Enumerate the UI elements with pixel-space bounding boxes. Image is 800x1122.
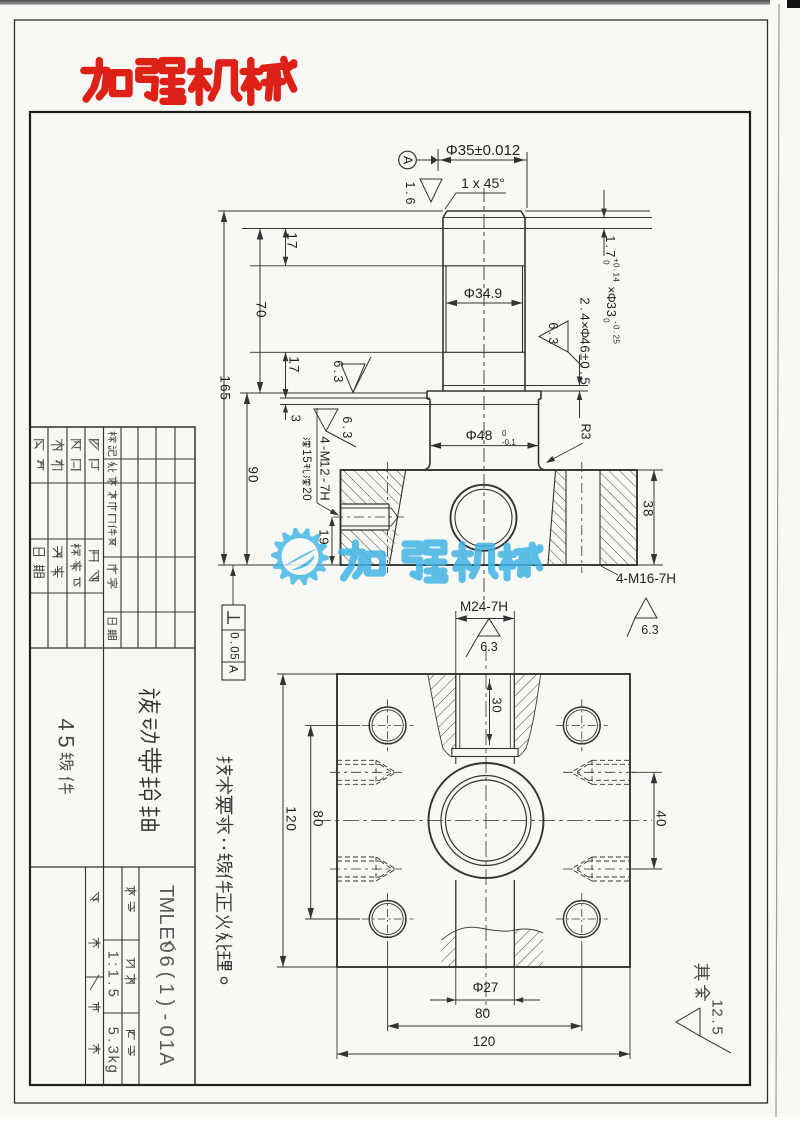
svg-text:2: 2 [578, 297, 593, 304]
svg-text:.: . [340, 425, 354, 428]
svg-text:5: 5 [578, 377, 593, 384]
svg-text:1: 1 [709, 999, 726, 1007]
svg-text:3: 3 [641, 500, 656, 508]
svg-text:1 x 45°: 1 x 45° [461, 175, 505, 191]
svg-text:A: A [155, 1052, 177, 1066]
svg-text:2: 2 [709, 1008, 726, 1016]
svg-text:A: A [227, 665, 241, 673]
svg-text:R: R [579, 423, 593, 432]
svg-text:3: 3 [604, 310, 618, 317]
svg-text:6: 6 [403, 198, 417, 205]
svg-text:0: 0 [155, 1025, 177, 1036]
svg-text:0: 0 [602, 318, 611, 323]
svg-text:T: T [155, 885, 177, 897]
svg-text:0: 0 [602, 260, 611, 265]
svg-text:1: 1 [603, 235, 617, 242]
svg-text:4: 4 [612, 277, 621, 282]
svg-text:6.3: 6.3 [480, 640, 497, 654]
svg-text:1: 1 [285, 232, 300, 240]
svg-text:.: . [578, 371, 593, 375]
svg-text:5: 5 [228, 653, 240, 659]
svg-text:-: - [612, 321, 621, 324]
svg-text:L: L [155, 913, 177, 924]
svg-text:4: 4 [318, 436, 333, 443]
svg-text:1: 1 [287, 356, 302, 364]
svg-text:4: 4 [54, 718, 79, 730]
svg-text:6: 6 [218, 384, 233, 392]
svg-text:0: 0 [578, 361, 593, 368]
svg-text:3: 3 [579, 433, 593, 440]
svg-text:-: - [318, 446, 333, 450]
svg-text:3: 3 [490, 697, 505, 704]
svg-text:1: 1 [105, 951, 121, 959]
svg-text:3: 3 [331, 375, 345, 382]
svg-text:4: 4 [654, 810, 669, 818]
svg-text:5: 5 [105, 989, 121, 997]
svg-text:.: . [331, 369, 345, 372]
svg-text:0: 0 [228, 632, 240, 638]
svg-text:2: 2 [318, 468, 333, 475]
svg-text:1: 1 [105, 970, 121, 978]
svg-text:0: 0 [311, 819, 326, 827]
svg-text:5: 5 [54, 735, 79, 747]
svg-text:6: 6 [331, 360, 345, 367]
svg-text:6: 6 [546, 322, 560, 329]
svg-text:5: 5 [300, 456, 312, 462]
svg-text:8: 8 [311, 810, 326, 818]
svg-text:3: 3 [105, 1046, 121, 1054]
svg-text:Φ35±0.012: Φ35±0.012 [446, 142, 520, 159]
svg-text:1: 1 [155, 983, 177, 994]
svg-text:8: 8 [641, 509, 656, 517]
svg-text:Φ34.9: Φ34.9 [464, 285, 503, 301]
svg-text:4-M16-7H: 4-M16-7H [616, 571, 676, 586]
svg-text:7: 7 [285, 241, 300, 249]
svg-text:5: 5 [105, 1027, 121, 1035]
svg-text:E: E [155, 926, 177, 939]
svg-text:3: 3 [604, 302, 618, 309]
svg-text:9: 9 [246, 466, 261, 474]
svg-text:7: 7 [254, 301, 269, 309]
svg-text:5: 5 [218, 392, 233, 400]
svg-text:A: A [401, 156, 415, 165]
svg-text:0: 0 [612, 263, 621, 268]
svg-text:3: 3 [289, 415, 304, 422]
svg-text:Φ48: Φ48 [466, 427, 493, 443]
svg-text:6: 6 [578, 345, 593, 352]
svg-text:.: . [603, 244, 617, 247]
svg-text:6: 6 [340, 416, 354, 423]
svg-text:.: . [612, 269, 621, 271]
svg-text:M: M [155, 897, 177, 914]
svg-text:.: . [578, 307, 593, 311]
svg-text:6: 6 [155, 955, 177, 966]
svg-text:H: H [318, 491, 333, 500]
svg-text:6.3: 6.3 [641, 623, 658, 637]
svg-text:7: 7 [287, 365, 302, 373]
svg-text:Φ27: Φ27 [473, 980, 499, 995]
svg-text:.: . [709, 1019, 726, 1023]
svg-text:-: - [318, 478, 333, 482]
svg-text:2: 2 [284, 815, 299, 823]
svg-text:4: 4 [578, 337, 593, 344]
svg-text:.: . [403, 191, 417, 194]
svg-text:-: - [155, 1014, 177, 1021]
svg-text:k: k [105, 1056, 121, 1064]
svg-text:1: 1 [284, 806, 299, 814]
svg-text:): ) [155, 1000, 177, 1007]
svg-text:80: 80 [475, 1006, 490, 1021]
svg-text:.: . [546, 331, 560, 334]
svg-text:3: 3 [340, 431, 354, 438]
svg-text:.: . [612, 331, 621, 333]
svg-text:0: 0 [654, 819, 669, 827]
svg-text:.: . [228, 641, 240, 644]
svg-text:1: 1 [218, 375, 233, 383]
svg-text:.: . [105, 1038, 121, 1042]
svg-text:.: . [105, 981, 121, 985]
svg-text:1: 1 [403, 182, 417, 189]
svg-text:1: 1 [300, 449, 312, 455]
svg-text:3: 3 [546, 337, 560, 344]
svg-text:0: 0 [612, 325, 621, 330]
svg-text:0: 0 [490, 705, 505, 712]
svg-text:0: 0 [284, 823, 299, 831]
svg-text:0: 0 [246, 475, 261, 483]
svg-text:0: 0 [300, 494, 312, 500]
svg-text:5: 5 [709, 1026, 726, 1034]
svg-text:4: 4 [578, 313, 593, 320]
svg-text:1: 1 [318, 460, 333, 467]
svg-text:2: 2 [300, 487, 312, 493]
svg-text:(: ( [155, 972, 177, 979]
svg-text:0: 0 [502, 429, 507, 438]
svg-text:0: 0 [228, 646, 240, 652]
svg-text:5: 5 [612, 339, 621, 344]
svg-text:±: ± [578, 353, 593, 360]
svg-text:0: 0 [155, 941, 177, 952]
svg-text:7: 7 [603, 250, 617, 257]
svg-text:120: 120 [473, 1034, 496, 1049]
svg-text:1: 1 [155, 1039, 177, 1050]
svg-text:M24-7H: M24-7H [460, 599, 508, 614]
svg-text:g: g [105, 1065, 121, 1073]
svg-text::: : [105, 962, 121, 966]
svg-text:0: 0 [254, 310, 269, 318]
